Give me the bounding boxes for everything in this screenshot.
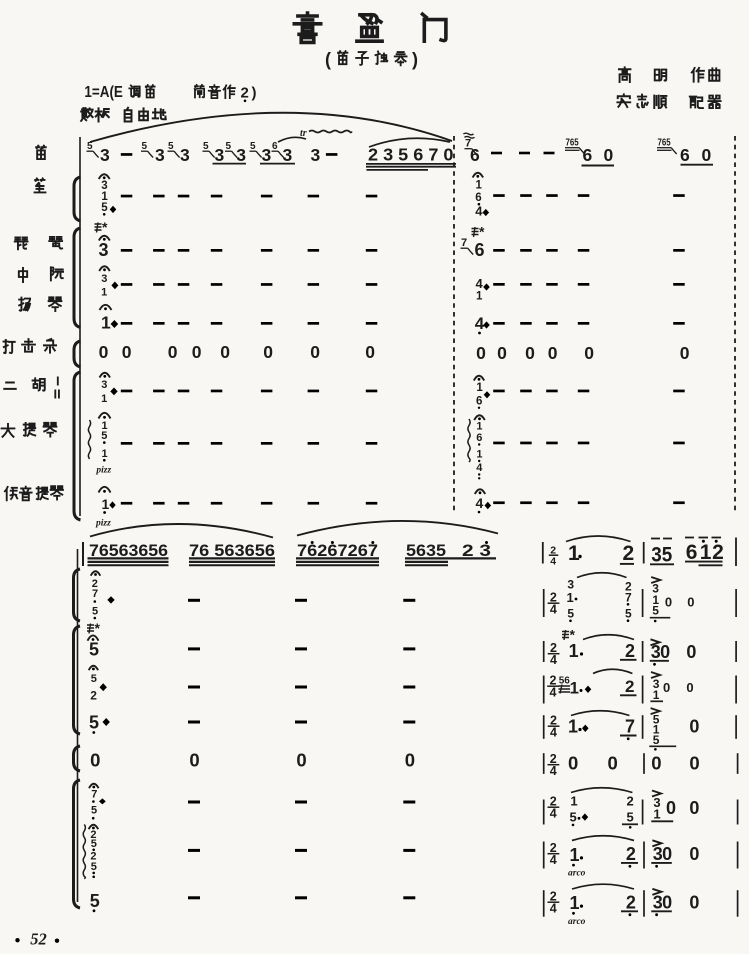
svg-text:4: 4 — [475, 204, 483, 219]
svg-text:0: 0 — [686, 642, 696, 662]
svg-text:5: 5 — [168, 141, 174, 152]
svg-text:2: 2 — [90, 689, 97, 703]
svg-text:1: 1 — [476, 449, 482, 461]
svg-text:0: 0 — [702, 145, 712, 165]
svg-text:5: 5 — [101, 202, 108, 214]
svg-text:4: 4 — [550, 653, 557, 667]
svg-text:(: ( — [325, 50, 331, 70]
svg-text:2: 2 — [241, 85, 249, 102]
svg-text:52: 52 — [30, 930, 47, 949]
svg-text:0: 0 — [122, 342, 132, 362]
svg-text:pizz: pizz — [95, 466, 111, 476]
svg-text:0: 0 — [689, 717, 699, 737]
svg-text:6: 6 — [686, 541, 698, 564]
svg-text:*: * — [95, 620, 101, 636]
svg-text:4: 4 — [476, 276, 484, 291]
svg-text:1: 1 — [570, 845, 580, 865]
svg-text:6: 6 — [475, 240, 485, 260]
svg-text:2: 2 — [627, 793, 634, 808]
svg-text:3: 3 — [101, 379, 107, 391]
svg-text:3: 3 — [262, 145, 272, 165]
svg-text:2: 2 — [626, 893, 636, 913]
svg-text:4: 4 — [550, 556, 556, 568]
svg-text:35: 35 — [651, 544, 672, 567]
svg-text:1: 1 — [569, 641, 579, 661]
svg-text:3: 3 — [101, 273, 107, 285]
svg-text:5: 5 — [652, 604, 659, 618]
svg-text:5: 5 — [142, 141, 148, 152]
svg-text:5: 5 — [567, 607, 574, 621]
svg-text:6: 6 — [476, 396, 482, 408]
svg-text:1=A(E: 1=A(E — [84, 84, 123, 101]
svg-text:5: 5 — [570, 810, 577, 825]
svg-text:4: 4 — [550, 686, 557, 700]
svg-text:0: 0 — [662, 844, 672, 864]
svg-text:1: 1 — [653, 688, 660, 702]
svg-text:1: 1 — [700, 541, 712, 564]
svg-text:0: 0 — [663, 680, 670, 695]
svg-text:5: 5 — [87, 141, 93, 152]
svg-text:5: 5 — [89, 640, 99, 660]
svg-text:1: 1 — [476, 291, 483, 303]
svg-text:0: 0 — [548, 343, 558, 363]
svg-text:4: 4 — [476, 495, 484, 511]
svg-text:0: 0 — [168, 342, 178, 362]
svg-text:5: 5 — [91, 805, 97, 817]
svg-text:0: 0 — [604, 145, 614, 165]
svg-text:4: 4 — [550, 853, 557, 867]
svg-text:0: 0 — [665, 595, 672, 610]
svg-text:0: 0 — [608, 752, 618, 773]
svg-text:4: 4 — [550, 726, 557, 740]
svg-text:765: 765 — [658, 137, 671, 149]
svg-text:76 563656: 76 563656 — [189, 542, 275, 560]
svg-text:1: 1 — [476, 179, 483, 191]
svg-text:3: 3 — [215, 145, 225, 165]
svg-text:arco: arco — [568, 869, 586, 879]
svg-text:1: 1 — [101, 393, 107, 405]
svg-text:1: 1 — [476, 382, 483, 394]
svg-text:5: 5 — [89, 713, 99, 733]
svg-text:0: 0 — [689, 893, 699, 913]
svg-text:5: 5 — [90, 891, 100, 911]
svg-text:pizz: pizz — [95, 519, 111, 529]
svg-text:3: 3 — [311, 145, 321, 165]
svg-text:1: 1 — [570, 679, 579, 698]
svg-text:6: 6 — [680, 145, 690, 165]
svg-text:2: 2 — [626, 844, 636, 864]
svg-text:2: 2 — [712, 541, 724, 564]
svg-text:3: 3 — [236, 145, 246, 165]
svg-text:76563656: 76563656 — [89, 542, 168, 560]
svg-text:4: 4 — [550, 603, 557, 617]
svg-text:3: 3 — [99, 240, 109, 260]
svg-text:2: 2 — [623, 542, 635, 565]
svg-text:7: 7 — [92, 588, 98, 600]
svg-text:4: 4 — [550, 764, 557, 778]
svg-text:5: 5 — [653, 733, 660, 747]
svg-text:0: 0 — [689, 844, 699, 864]
svg-text:2: 2 — [625, 677, 634, 696]
svg-text:6: 6 — [272, 141, 278, 152]
svg-text:5: 5 — [91, 838, 97, 850]
svg-text:*: * — [479, 224, 485, 240]
svg-text:7: 7 — [625, 717, 635, 737]
svg-text:0: 0 — [525, 343, 535, 363]
svg-text:0: 0 — [192, 342, 202, 362]
svg-text:6: 6 — [470, 145, 480, 165]
svg-text:1: 1 — [653, 807, 660, 822]
svg-text:0: 0 — [99, 342, 109, 362]
svg-text:5: 5 — [91, 861, 97, 873]
svg-text:0: 0 — [651, 752, 661, 773]
svg-text:1: 1 — [568, 542, 580, 565]
svg-text:0: 0 — [405, 749, 415, 770]
svg-text:5: 5 — [101, 430, 107, 442]
svg-text:0: 0 — [689, 752, 699, 773]
svg-text:3: 3 — [155, 145, 165, 165]
svg-text:5: 5 — [203, 141, 209, 152]
svg-text:0: 0 — [666, 798, 676, 818]
svg-text:1: 1 — [568, 717, 578, 737]
svg-text:6: 6 — [475, 192, 481, 204]
svg-text:5: 5 — [625, 607, 632, 621]
svg-text:1: 1 — [567, 590, 574, 605]
svg-text:0: 0 — [263, 342, 273, 362]
svg-text:5: 5 — [627, 810, 634, 825]
svg-text:7: 7 — [625, 590, 632, 604]
svg-text:1: 1 — [570, 893, 580, 913]
svg-text:5: 5 — [250, 141, 256, 152]
svg-text:0: 0 — [90, 749, 100, 770]
svg-text:0: 0 — [584, 343, 594, 363]
svg-text:6: 6 — [583, 145, 593, 165]
svg-text:5: 5 — [91, 673, 97, 685]
svg-text:76267267: 76267267 — [297, 542, 378, 560]
svg-text:tr: tr — [300, 128, 307, 139]
svg-text:II: II — [54, 387, 61, 402]
svg-text:1: 1 — [101, 286, 107, 298]
svg-text:1: 1 — [101, 313, 111, 333]
svg-text:0: 0 — [476, 343, 486, 363]
svg-text:4: 4 — [550, 902, 557, 916]
svg-text:0: 0 — [687, 595, 694, 610]
svg-text:0: 0 — [497, 343, 507, 363]
svg-text:3: 3 — [180, 145, 190, 165]
svg-text:): ) — [252, 85, 257, 102]
svg-text:1: 1 — [476, 421, 482, 433]
svg-text:3: 3 — [283, 145, 293, 165]
svg-text:0: 0 — [660, 642, 670, 662]
svg-text:6: 6 — [476, 432, 482, 444]
svg-text:5: 5 — [226, 141, 232, 152]
svg-text:*: * — [102, 219, 108, 235]
svg-text:2 3: 2 3 — [462, 542, 491, 560]
svg-text:1: 1 — [570, 793, 577, 808]
svg-text:0: 0 — [662, 893, 672, 913]
svg-text:0: 0 — [686, 680, 693, 695]
svg-text:1: 1 — [102, 448, 108, 460]
svg-text:0: 0 — [689, 798, 699, 818]
svg-text:): ) — [412, 50, 418, 70]
svg-text:7: 7 — [461, 237, 467, 249]
svg-text:0: 0 — [568, 752, 578, 773]
svg-text:0: 0 — [220, 342, 230, 362]
svg-text:765: 765 — [566, 137, 579, 149]
svg-text:arco: arco — [568, 917, 586, 927]
svg-text:2 3 5 6 7 0: 2 3 5 6 7 0 — [368, 145, 454, 165]
svg-text:5: 5 — [92, 606, 98, 618]
svg-text:0: 0 — [365, 342, 375, 362]
svg-text:*: * — [570, 627, 576, 643]
svg-text:0: 0 — [189, 749, 199, 770]
svg-text:4: 4 — [476, 462, 483, 474]
svg-text:3: 3 — [100, 145, 110, 165]
svg-text:2: 2 — [625, 641, 635, 661]
svg-text:4: 4 — [475, 314, 485, 333]
svg-text:1: 1 — [102, 496, 110, 512]
svg-text:0: 0 — [296, 749, 306, 770]
svg-text:0: 0 — [310, 342, 320, 362]
svg-text:5635: 5635 — [406, 542, 446, 560]
svg-text:0: 0 — [680, 343, 690, 363]
svg-text:7: 7 — [91, 789, 97, 801]
svg-text:4: 4 — [550, 807, 557, 821]
